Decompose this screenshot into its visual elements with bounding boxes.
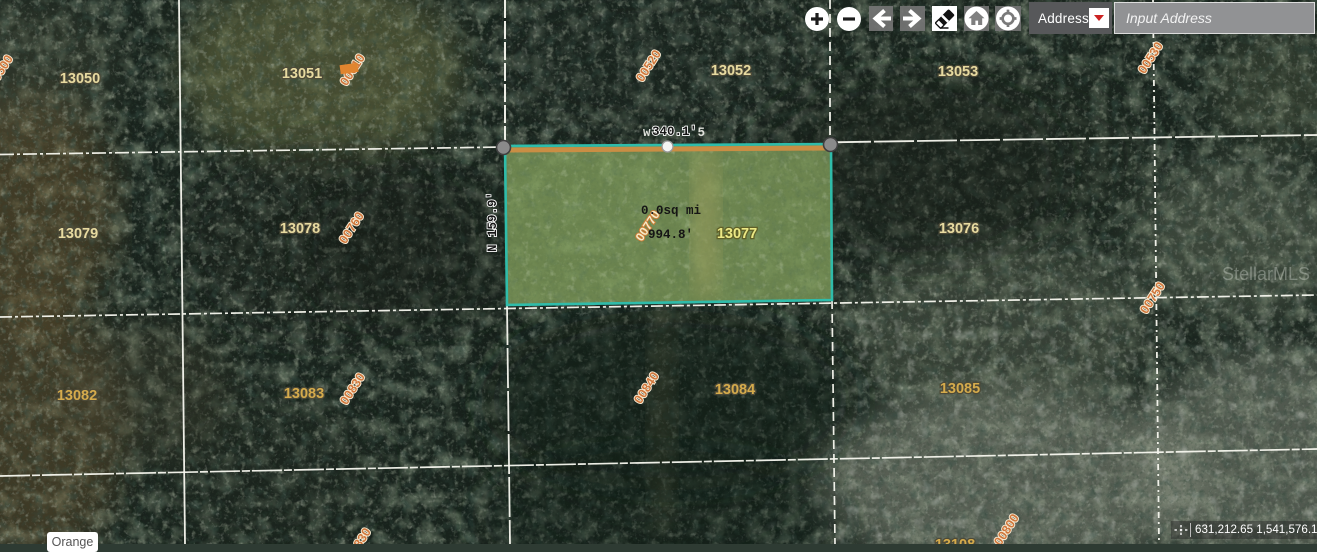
svg-text:13078: 13078 xyxy=(280,221,320,237)
svg-text:13082: 13082 xyxy=(57,388,97,404)
svg-text:5: 5 xyxy=(698,126,706,140)
svg-text:13076: 13076 xyxy=(939,221,979,237)
svg-text:340.1': 340.1' xyxy=(652,125,697,139)
svg-text:13050: 13050 xyxy=(60,71,100,87)
svg-text:N 159.9': N 159.9' xyxy=(486,192,500,252)
svg-text:13053: 13053 xyxy=(938,64,978,80)
svg-text:13083: 13083 xyxy=(284,386,324,402)
svg-text:13108: 13108 xyxy=(935,537,975,544)
svg-text:13084: 13084 xyxy=(715,382,755,398)
svg-text:w: w xyxy=(643,126,651,140)
svg-text:13051: 13051 xyxy=(282,66,322,82)
svg-text:0.0sq mi: 0.0sq mi xyxy=(641,204,701,218)
svg-text:13079: 13079 xyxy=(58,226,98,242)
svg-text:13052: 13052 xyxy=(711,63,751,79)
svg-text:13077: 13077 xyxy=(717,226,757,242)
svg-text:13085: 13085 xyxy=(940,381,980,397)
svg-text:StellarMLS: StellarMLS xyxy=(1222,264,1310,284)
svg-text:994.8': 994.8' xyxy=(648,228,693,242)
